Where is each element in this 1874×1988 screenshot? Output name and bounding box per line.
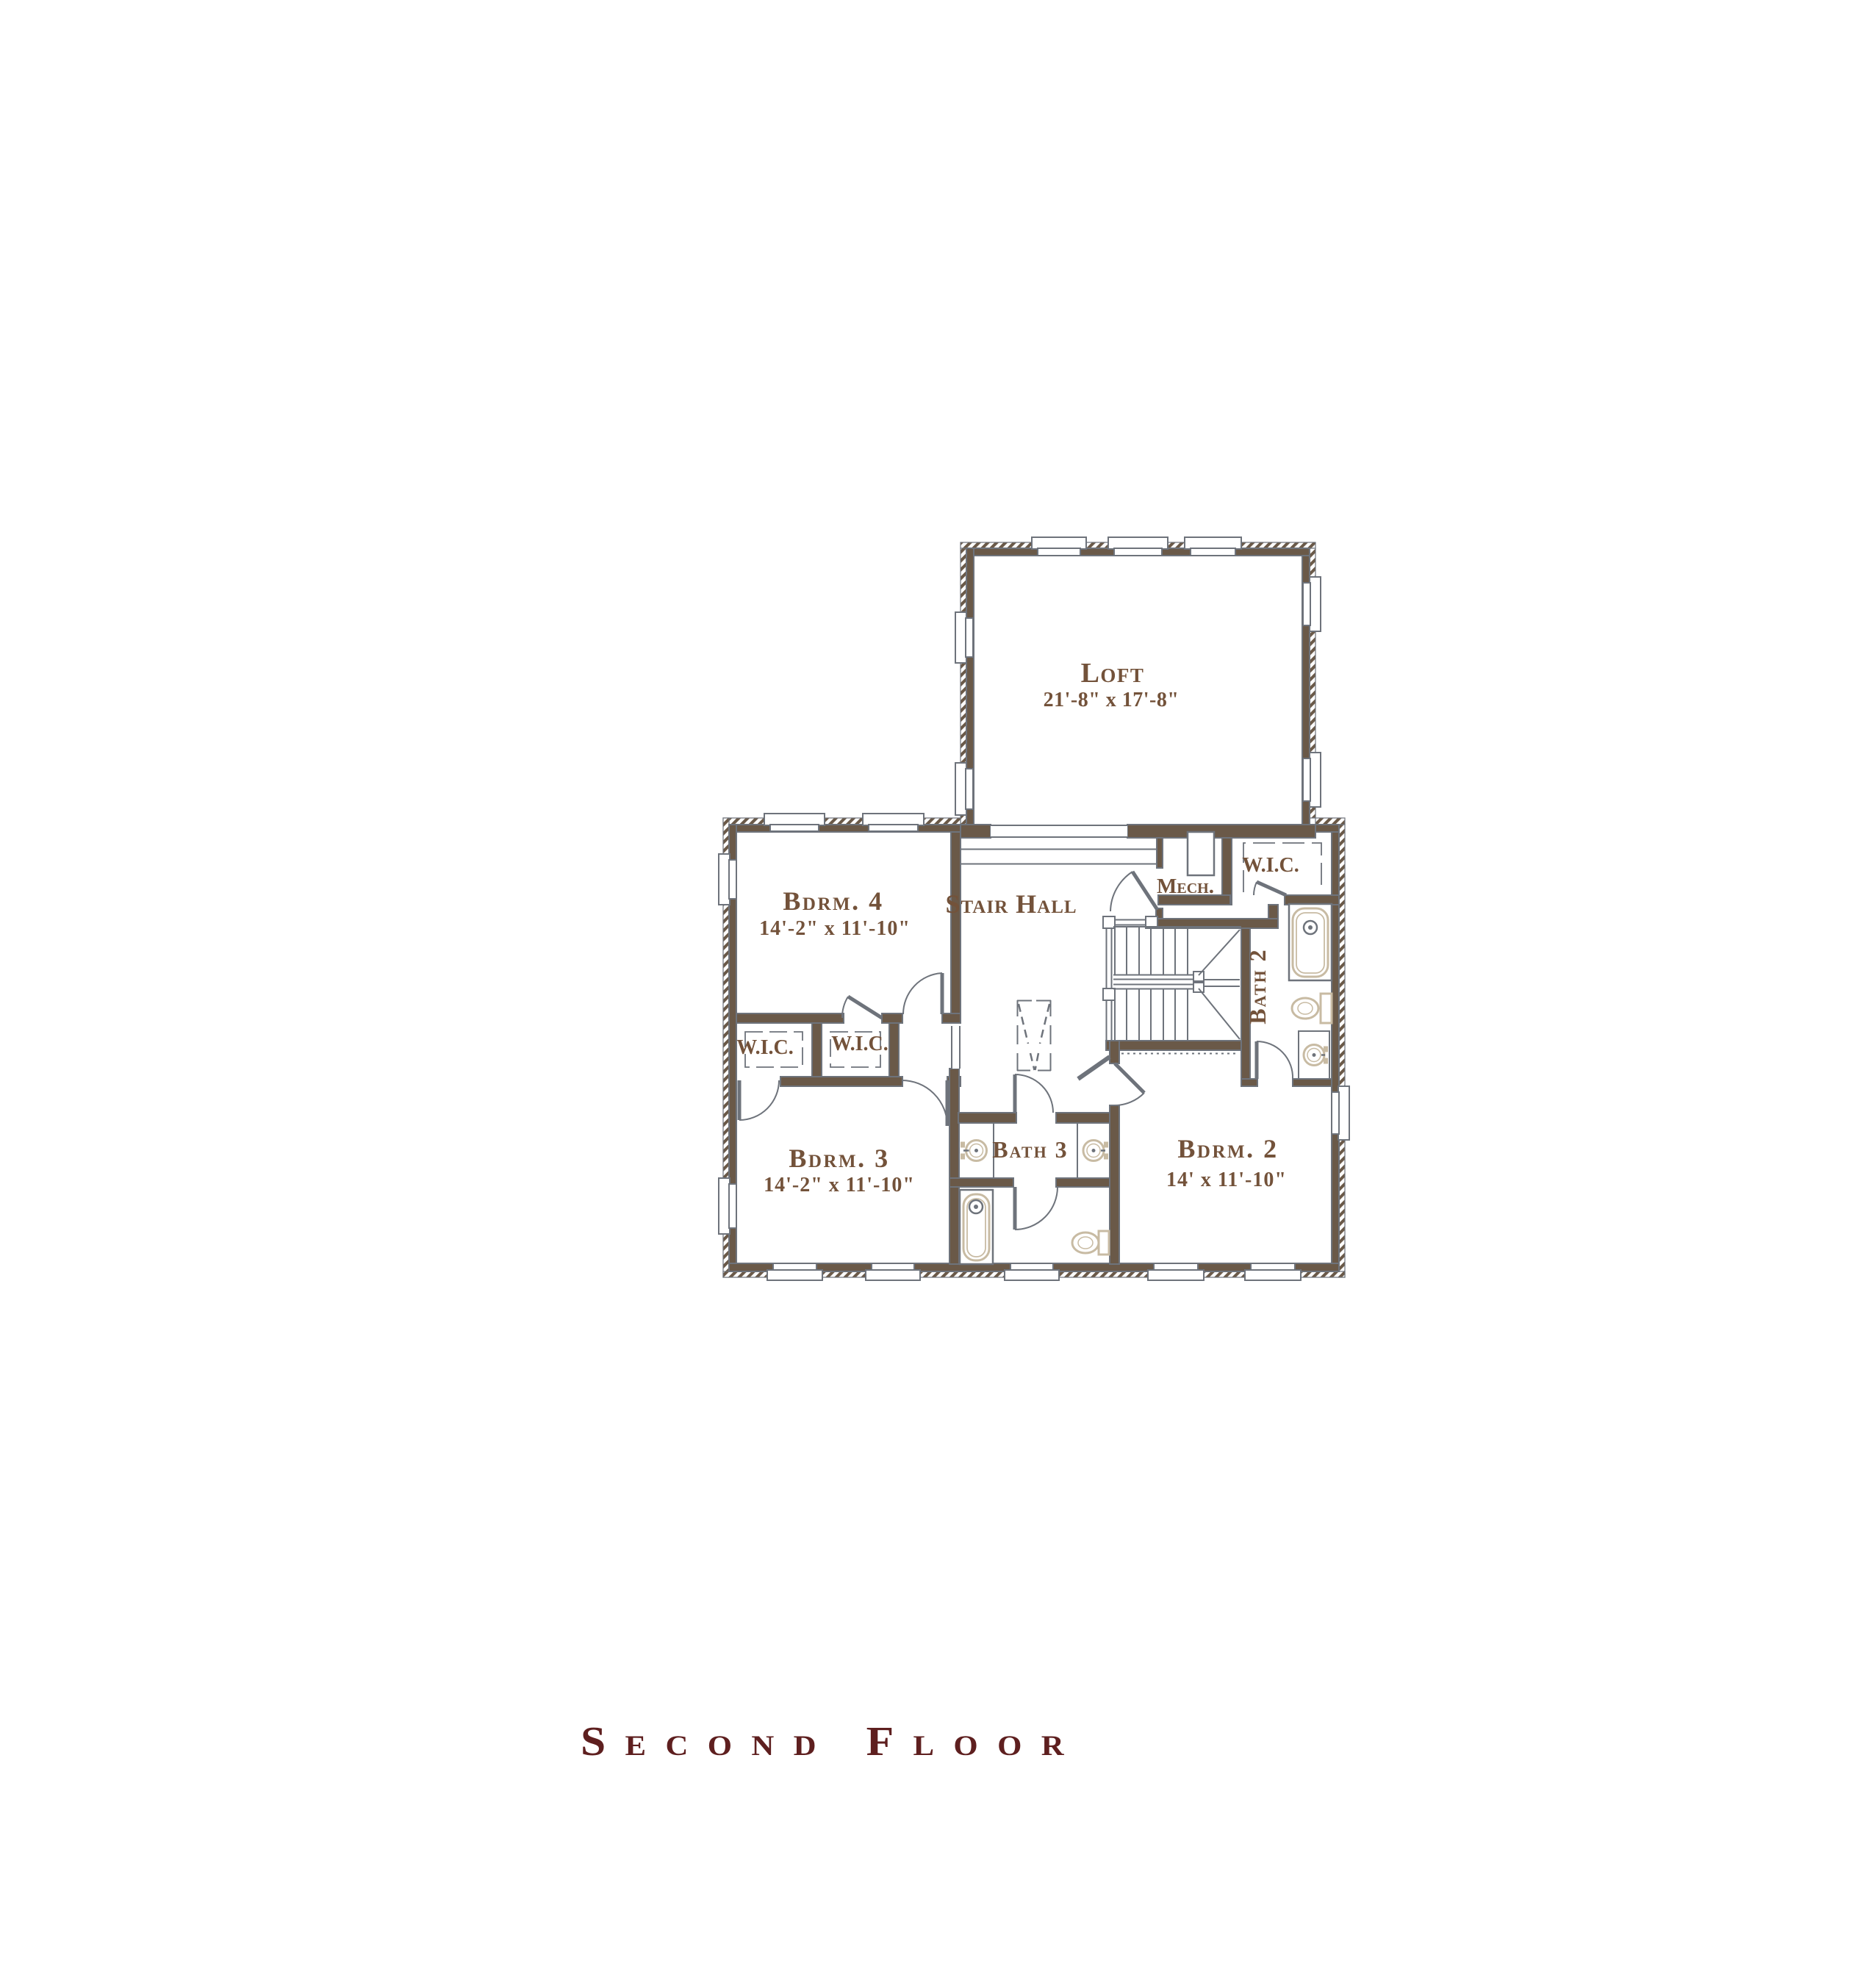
svg-text:W.I.C.: W.I.C. [831,1033,888,1055]
svg-text:14'-2" x 11'-10": 14'-2" x 11'-10" [759,917,911,940]
svg-text:W.I.C.: W.I.C. [1242,854,1299,877]
svg-text:Bdrm. 2: Bdrm. 2 [1177,1134,1278,1163]
svg-text:14' x 11'-10": 14' x 11'-10" [1166,1169,1287,1191]
svg-text:W.I.C.: W.I.C. [736,1036,794,1059]
svg-text:Mech.: Mech. [1157,875,1214,898]
svg-text:Second Floor: Second Floor [581,1719,1083,1765]
svg-text:Bath 3: Bath 3 [992,1136,1068,1163]
svg-text:Stair Hall: Stair Hall [945,889,1077,919]
svg-text:14'-2" x 11'-10": 14'-2" x 11'-10" [764,1174,915,1196]
svg-text:Bdrm. 4: Bdrm. 4 [783,886,883,916]
svg-text:Loft: Loft [1081,658,1145,689]
svg-text:Bath 2: Bath 2 [1244,948,1271,1024]
svg-text:Bdrm. 3: Bdrm. 3 [789,1144,889,1173]
svg-text:21'-8" x 17'-8": 21'-8" x 17'-8" [1044,689,1180,711]
